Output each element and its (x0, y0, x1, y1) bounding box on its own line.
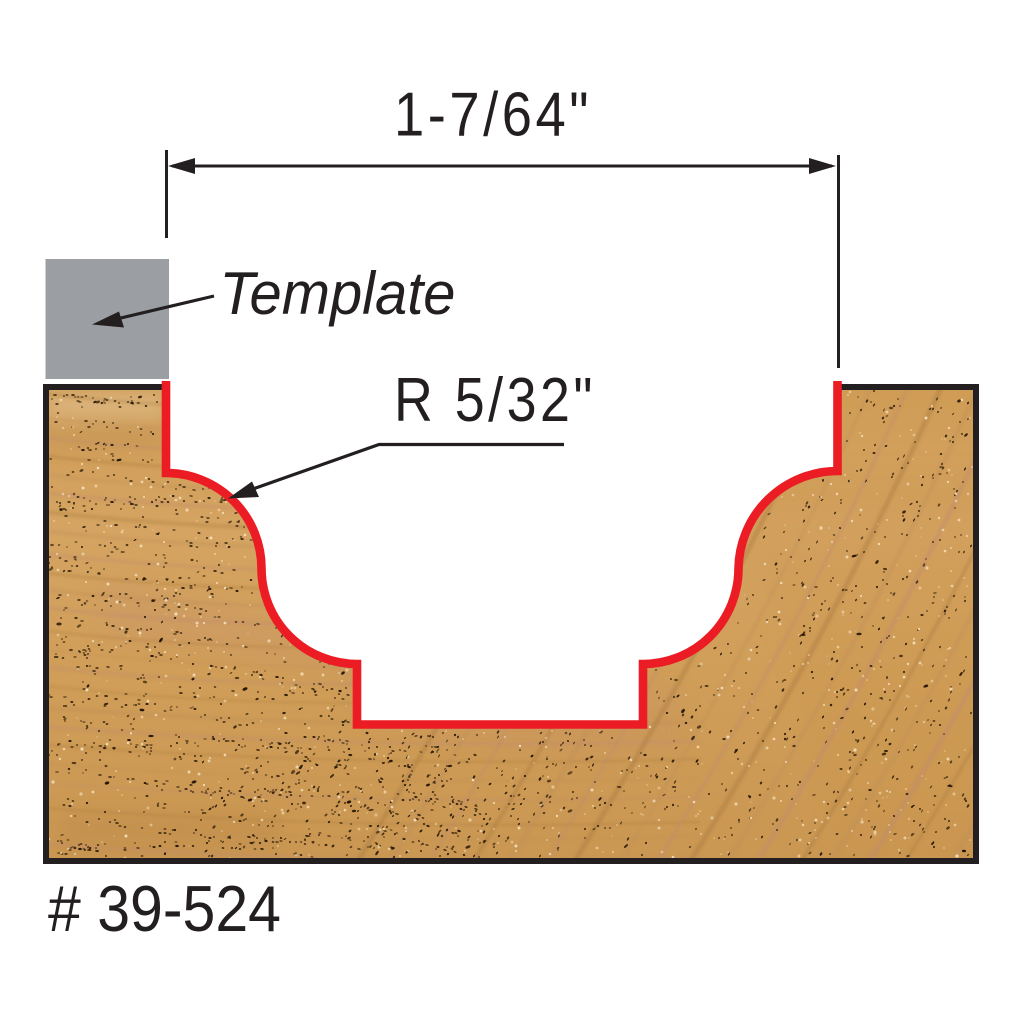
svg-text:R 5/32": R 5/32" (394, 366, 596, 435)
svg-text:# 39-524: # 39-524 (48, 872, 281, 945)
svg-text:Template: Template (220, 260, 456, 327)
svg-text:1-7/64": 1-7/64" (394, 81, 592, 150)
